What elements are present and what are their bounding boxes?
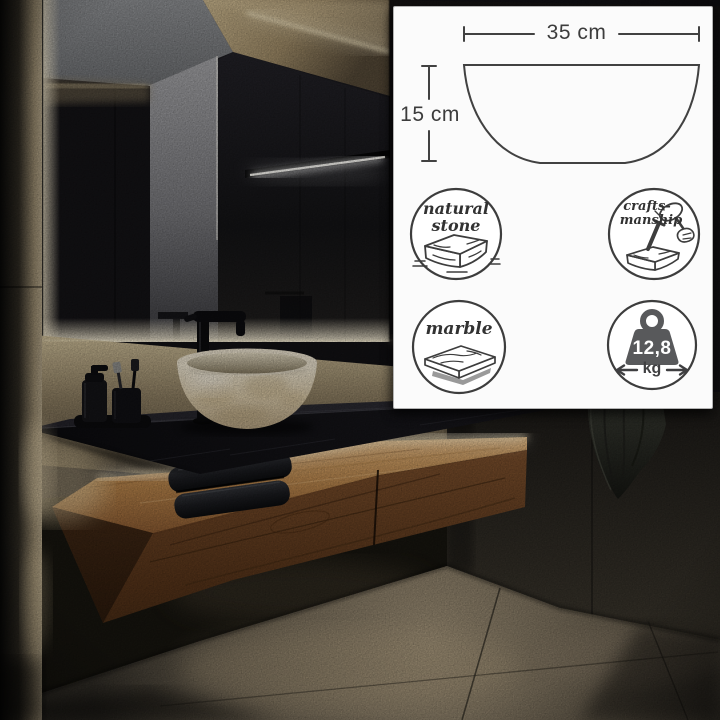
badge-label: stone	[409, 218, 503, 234]
badge-label: natural	[409, 201, 503, 217]
weight-unit: kg	[606, 360, 698, 378]
marble-icon	[411, 299, 507, 395]
badge-label: crafts-	[593, 200, 701, 213]
badge-marble: marble	[411, 299, 507, 395]
badge-label: manship	[601, 214, 701, 227]
product-image: 35 cm 15 cm natural stone	[0, 0, 720, 720]
badge-craftsmanship: crafts- manship	[607, 187, 701, 281]
badge-weight: 12,8 kg	[606, 299, 698, 391]
weight-value: 12,8	[606, 338, 698, 360]
height-dimension-label: 15 cm	[396, 103, 464, 127]
spec-overlay-panel: 35 cm 15 cm natural stone	[393, 6, 713, 409]
badge-natural-stone: natural stone	[409, 187, 503, 281]
width-dimension-label: 35 cm	[534, 21, 619, 45]
basin-profile-outline	[464, 65, 699, 163]
badge-label: marble	[411, 321, 507, 338]
